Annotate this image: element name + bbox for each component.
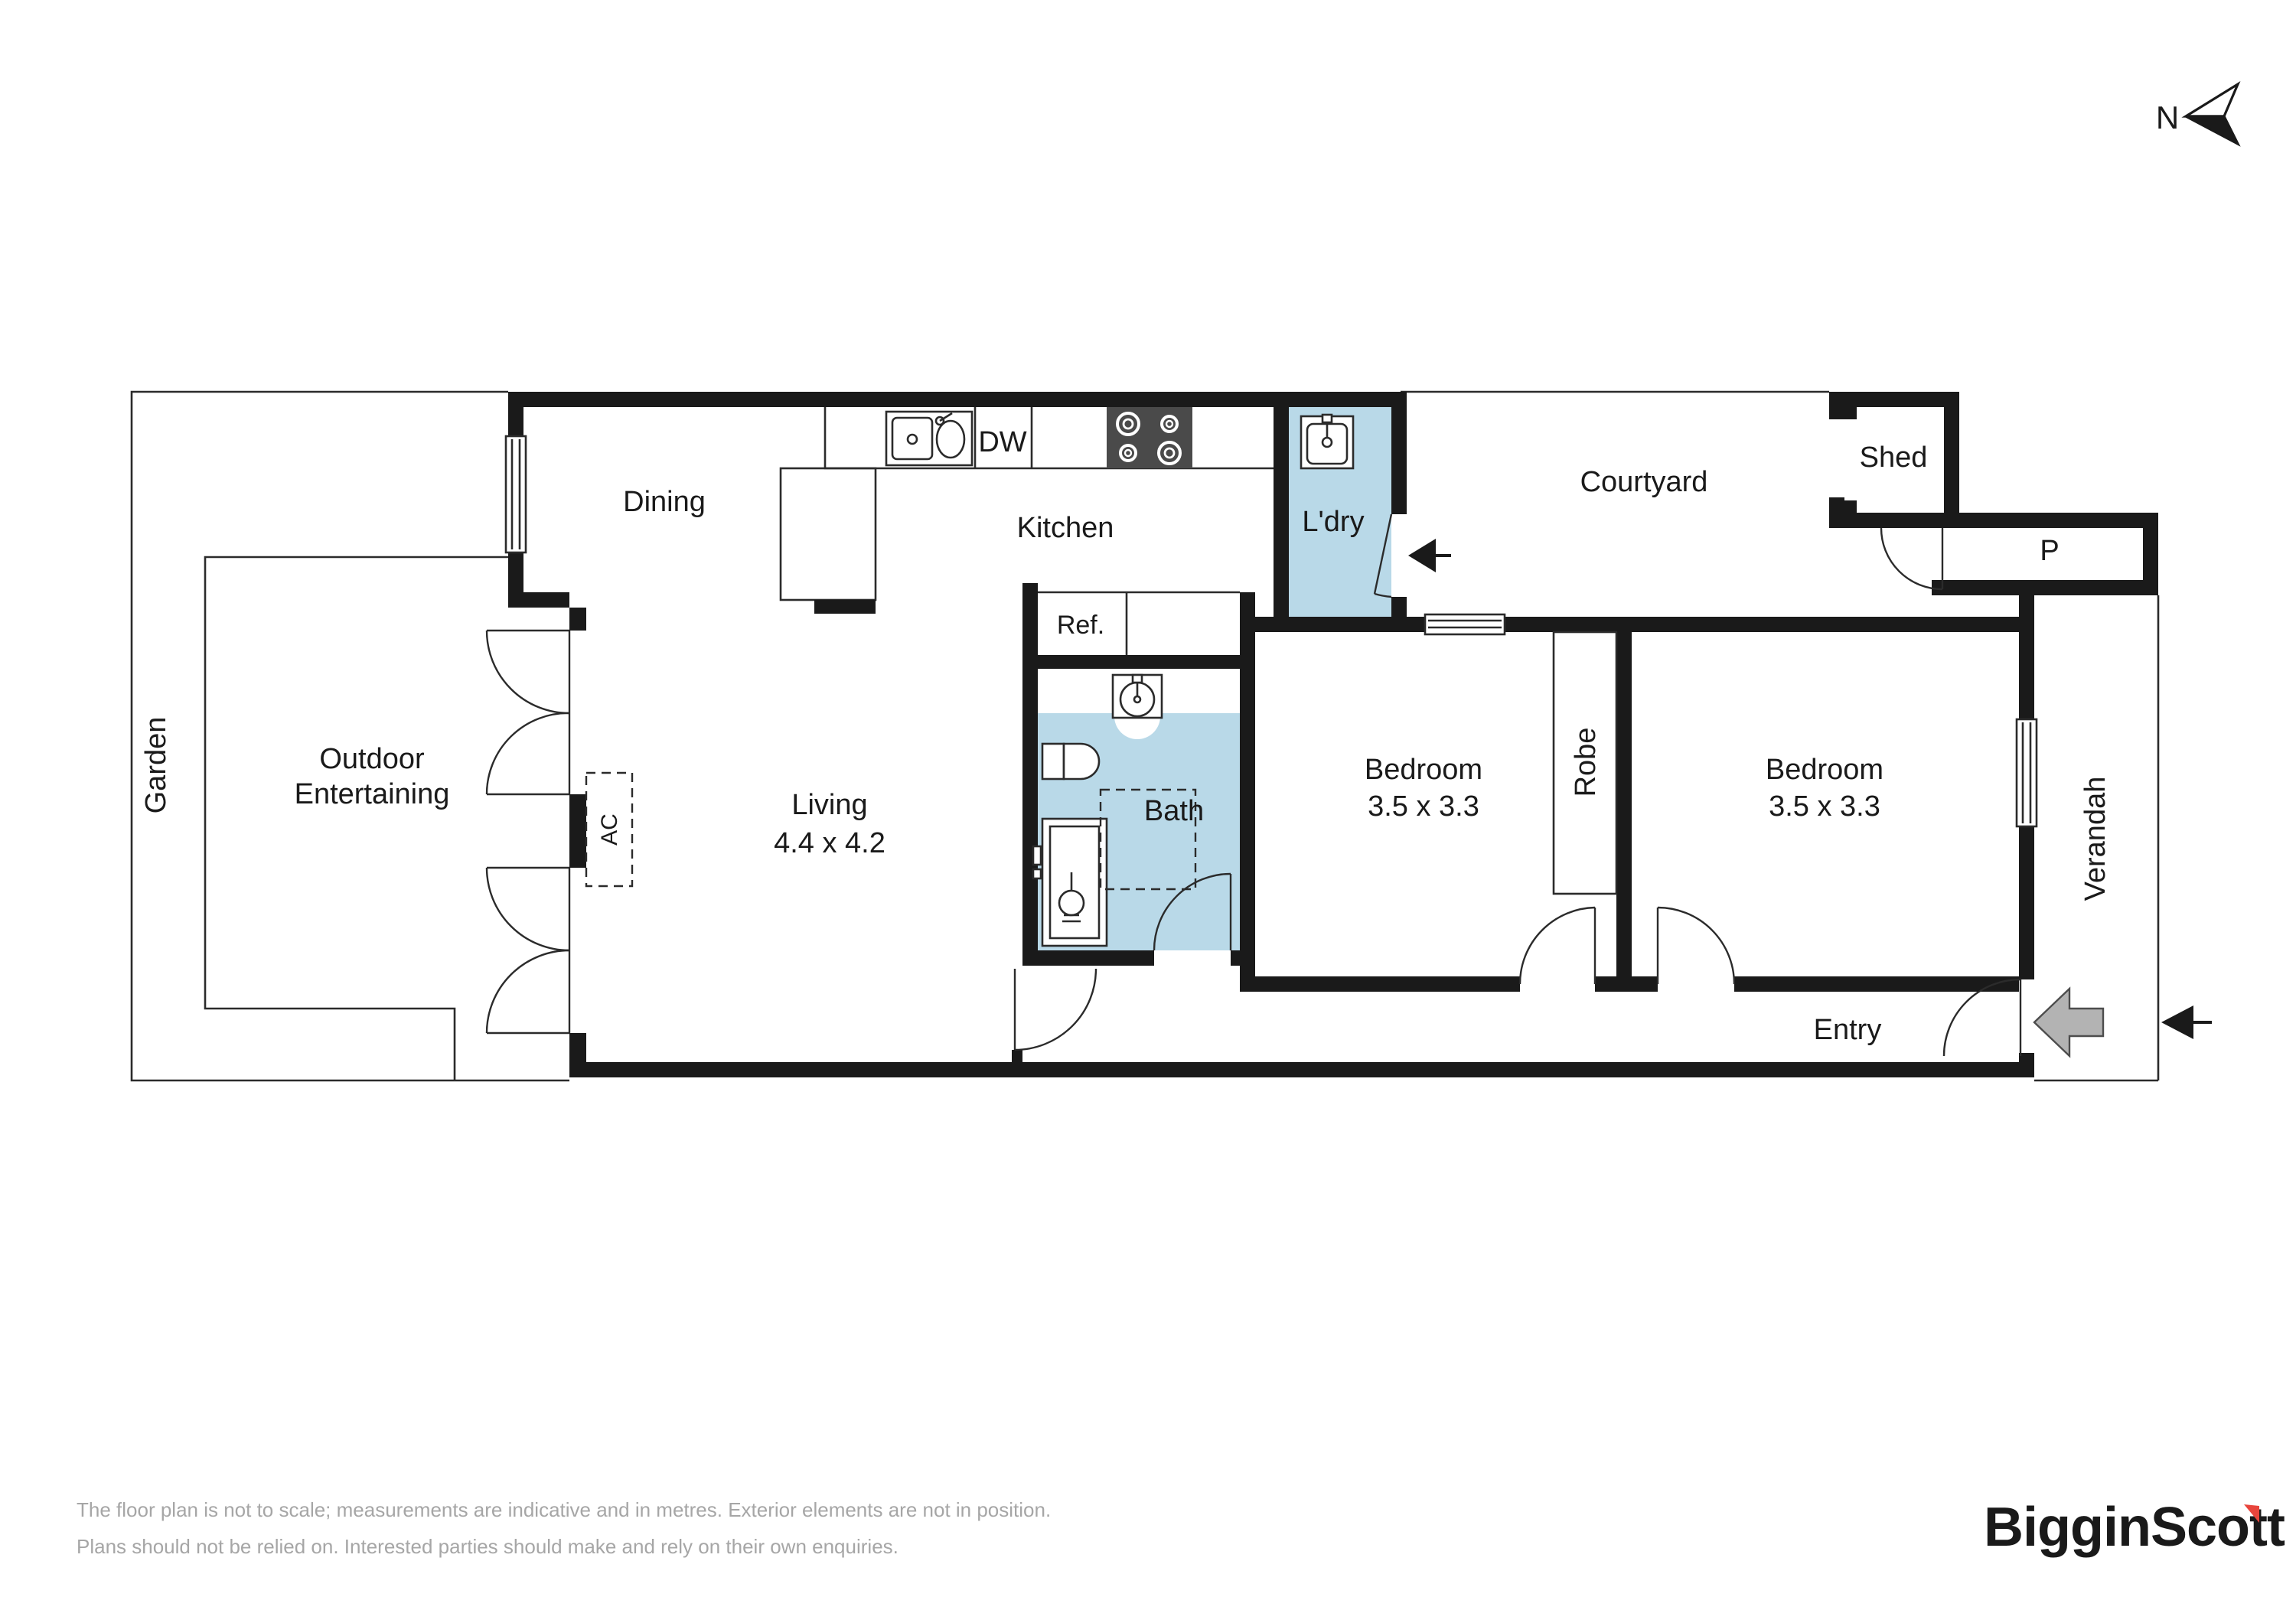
- kitchen-bench: [781, 468, 876, 614]
- label-outdoor-2: Entertaining: [295, 778, 450, 810]
- label-courtyard: Courtyard: [1580, 466, 1708, 498]
- label-living: Living: [791, 789, 867, 821]
- side-entry-arrow-icon: [1408, 539, 1451, 572]
- label-kitchen: Kitchen: [1017, 512, 1114, 544]
- label-robe: Robe: [1570, 728, 1602, 797]
- label-living-dims: 4.4 x 4.2: [774, 827, 885, 859]
- wall: [508, 592, 569, 608]
- wall: [2019, 826, 2034, 979]
- wall: [1012, 1050, 1022, 1062]
- wall: [569, 608, 586, 631]
- french-doors-upper: [487, 631, 569, 794]
- brand-logo: BigginScott: [1984, 1497, 2285, 1558]
- wall: [1616, 632, 1632, 992]
- disclaimer-line-2: Plans should not be relied on. Intereste…: [77, 1535, 899, 1558]
- floorplan-canvas: N: [0, 0, 2296, 1623]
- wall: [1022, 655, 1240, 669]
- toilet-icon: [1042, 744, 1099, 779]
- label-verandah: Verandah: [2079, 777, 2112, 901]
- label-bedroom2: Bedroom: [1766, 754, 1883, 786]
- wall: [1255, 976, 1520, 992]
- compass-label: N: [2156, 99, 2179, 135]
- north-arrow-icon: [2186, 116, 2238, 144]
- floorplan-page: N: [0, 0, 2296, 1623]
- cooktop-icon: [1107, 407, 1192, 468]
- street-arrow-icon: [2161, 1005, 2212, 1039]
- shed-wall: [1829, 392, 1844, 419]
- wall-ac-stub: [569, 794, 586, 868]
- wall: [1022, 583, 1038, 966]
- kitchen-sink-icon: [886, 412, 972, 465]
- label-bedroom1: Bedroom: [1365, 754, 1482, 786]
- shed-jamb: [1844, 500, 1857, 513]
- wall: [1734, 976, 2019, 992]
- porch-jamb: [1932, 513, 1942, 528]
- footer: The floor plan is not to scale; measurem…: [77, 1497, 2285, 1558]
- shed-wall: [1944, 392, 1959, 528]
- hall-door: [1015, 969, 1096, 1050]
- label-p: P: [2040, 535, 2059, 567]
- porch-wall: [1942, 580, 2158, 595]
- wall-south: [569, 1062, 2034, 1077]
- wall: [1022, 950, 1154, 966]
- disclaimer-line-1: The floor plan is not to scale; measurem…: [77, 1498, 1051, 1521]
- label-ac: AC: [597, 813, 622, 846]
- label-garden: Garden: [140, 717, 172, 814]
- wall: [1391, 392, 1407, 514]
- label-outdoor-1: Outdoor: [319, 743, 425, 775]
- laundry-trough-icon: [1301, 415, 1353, 468]
- wall: [508, 392, 1407, 407]
- porch-wall: [1959, 513, 2158, 528]
- wall: [1240, 617, 2034, 632]
- label-entry: Entry: [1814, 1014, 1882, 1046]
- wall: [1240, 592, 1255, 992]
- window-dining-west: [506, 436, 526, 552]
- entry-arrow-icon: [2034, 989, 2103, 1056]
- bedroom1-door: [1520, 908, 1595, 984]
- brand-logo-text: BigginScott: [1984, 1497, 2285, 1558]
- shed-wall: [1829, 392, 1959, 407]
- wall: [2019, 595, 2034, 719]
- shed-jamb: [1844, 407, 1857, 419]
- label-shed: Shed: [1860, 442, 1928, 474]
- window-courtyard-south: [1425, 614, 1505, 634]
- label-ldry: L'dry: [1302, 506, 1364, 538]
- label-bedroom2-dims: 3.5 x 3.3: [1769, 790, 1880, 823]
- north-arrow-icon: [2186, 84, 2238, 116]
- paving-outline: [205, 557, 508, 1080]
- wall: [1595, 976, 1658, 992]
- garden-boundary: [132, 392, 569, 1080]
- wall: [1274, 407, 1289, 617]
- bedroom2-door: [1658, 908, 1734, 984]
- label-dining: Dining: [623, 486, 706, 518]
- label-bedroom1-dims: 3.5 x 3.3: [1368, 790, 1479, 823]
- shower-icon: [1033, 819, 1107, 946]
- bath-basin-icon: [1113, 675, 1162, 718]
- label-ref: Ref.: [1057, 611, 1104, 640]
- label-bath: Bath: [1144, 795, 1204, 827]
- compass-north: N: [2156, 84, 2238, 144]
- french-doors-lower: [487, 868, 569, 1033]
- label-dw: DW: [978, 426, 1026, 458]
- window-bedroom2-east: [2017, 719, 2037, 826]
- wall: [1231, 950, 1255, 966]
